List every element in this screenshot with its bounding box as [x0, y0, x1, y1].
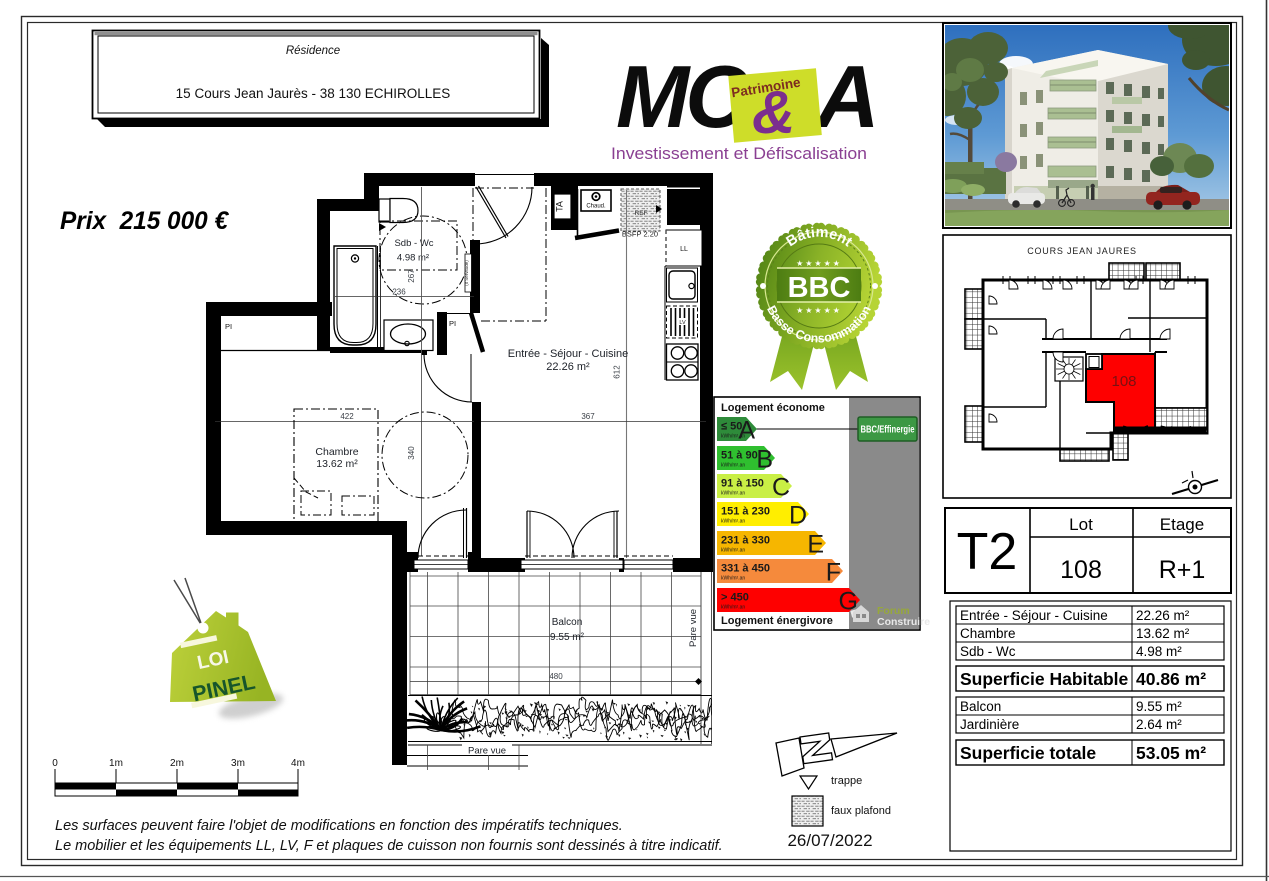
svg-text:4.98 m²: 4.98 m² [397, 253, 429, 264]
svg-text:kWh/m².an: kWh/m².an [721, 576, 745, 582]
svg-text:Superficie Habitable: Superficie Habitable [960, 669, 1129, 689]
svg-text:Balcon: Balcon [960, 699, 1001, 714]
svg-text:236: 236 [392, 288, 406, 297]
svg-text:Etage: Etage [1160, 515, 1204, 534]
svg-text:A: A [814, 47, 880, 146]
svg-text:★★★★★: ★★★★★ [796, 306, 842, 315]
svg-text:53.05 m²: 53.05 m² [1136, 743, 1206, 763]
svg-text:R+1: R+1 [1159, 556, 1206, 584]
svg-text:26/07/2022: 26/07/2022 [787, 831, 872, 850]
svg-text:231 à 330: 231 à 330 [721, 535, 770, 547]
svg-text:108: 108 [1060, 556, 1102, 584]
svg-text:9.55 m²: 9.55 m² [550, 632, 585, 643]
svg-text:> 450: > 450 [721, 592, 749, 604]
svg-text:Chambre: Chambre [960, 626, 1016, 641]
svg-text:Lot: Lot [1069, 515, 1093, 534]
svg-text:22.26 m²: 22.26 m² [1136, 608, 1190, 623]
svg-text:108: 108 [1111, 373, 1136, 390]
svg-text:BBC/Effinergie: BBC/Effinergie [861, 425, 915, 436]
svg-text:15 Cours Jean Jaurès - 38 130: 15 Cours Jean Jaurès - 38 130 ECHIROLLES [176, 86, 451, 101]
svg-text:Sdb - Wc: Sdb - Wc [394, 238, 433, 249]
svg-text:4m: 4m [291, 758, 305, 769]
svg-text:Pare vue: Pare vue [468, 746, 506, 757]
svg-text:kWh/m².an: kWh/m².an [721, 463, 745, 469]
svg-text:331 à 450: 331 à 450 [721, 563, 770, 575]
svg-text:Entrée - Séjour - Cuisine: Entrée - Séjour - Cuisine [508, 348, 628, 360]
svg-text:Résidence: Résidence [286, 45, 340, 57]
svg-text:BBC: BBC [788, 272, 851, 304]
svg-text:13.62 m²: 13.62 m² [1136, 626, 1190, 641]
svg-text:&: & [752, 79, 795, 146]
svg-text:F: F [826, 559, 841, 587]
svg-text:(lt Servitude): (lt Servitude) [464, 260, 469, 286]
svg-text:A: A [738, 417, 755, 445]
svg-text:422: 422 [340, 412, 354, 421]
svg-text:612: 612 [613, 365, 622, 379]
svg-text:3m: 3m [231, 758, 245, 769]
svg-text:COURS JEAN JAURES: COURS JEAN JAURES [1027, 246, 1137, 256]
svg-text:faux plafond: faux plafond [831, 805, 891, 817]
svg-text:kWh/m².an: kWh/m².an [721, 548, 745, 554]
svg-text:4.98 m²: 4.98 m² [1136, 644, 1182, 659]
svg-text:TA: TA [555, 201, 565, 212]
svg-text:340: 340 [407, 446, 416, 460]
svg-text:151 à 230: 151 à 230 [721, 506, 770, 518]
svg-text:Les surfaces peuvent faire l'o: Les surfaces peuvent faire l'objet de mo… [55, 818, 623, 834]
svg-text:Logement énergivore: Logement énergivore [721, 615, 833, 627]
svg-text:LV: LV [679, 320, 686, 326]
svg-text:2m: 2m [170, 758, 184, 769]
svg-text:kWh/m².an: kWh/m².an [721, 605, 745, 611]
svg-text:E: E [807, 531, 824, 559]
svg-text:REF: REF [635, 210, 648, 217]
svg-text:B: B [756, 446, 773, 474]
svg-text:★★★★★: ★★★★★ [796, 259, 842, 268]
svg-text:Investissement et Défiscalisat: Investissement et Défiscalisation [611, 144, 867, 163]
svg-text:367: 367 [581, 412, 595, 421]
svg-text:9.55 m²: 9.55 m² [1136, 699, 1182, 714]
svg-text:Balcon: Balcon [552, 617, 583, 628]
svg-text:0: 0 [52, 758, 58, 769]
svg-text:Le mobilier et les équipements: Le mobilier et les équipements LL, LV, F… [55, 838, 723, 854]
svg-text:Sdb - Wc: Sdb - Wc [960, 644, 1016, 659]
svg-text:480: 480 [549, 672, 563, 681]
svg-text:Pare vue: Pare vue [688, 609, 699, 647]
svg-text:PI: PI [449, 319, 456, 328]
svg-text:C: C [772, 474, 790, 502]
svg-text:kWh/m².an: kWh/m².an [721, 519, 745, 525]
svg-text:Logement économe: Logement économe [721, 402, 825, 414]
svg-text:BSFP 2.20: BSFP 2.20 [622, 230, 658, 239]
svg-text:Superficie totale: Superficie totale [960, 743, 1096, 763]
svg-text:D: D [789, 502, 807, 530]
svg-text:91 à 150: 91 à 150 [721, 478, 764, 490]
svg-text:1m: 1m [109, 758, 123, 769]
svg-text:40.86 m²: 40.86 m² [1136, 669, 1206, 689]
svg-text:Construire: Construire [877, 616, 930, 628]
svg-text:kWh/m².an: kWh/m².an [721, 491, 745, 497]
svg-text:Prix 215 000 €: Prix 215 000 € [60, 207, 229, 235]
svg-text:13.62 m²: 13.62 m² [316, 458, 358, 470]
svg-text:267: 267 [407, 269, 416, 283]
svg-text:Chaud.: Chaud. [586, 204, 606, 210]
svg-text:PI: PI [225, 322, 232, 331]
svg-text:trappe: trappe [831, 775, 862, 787]
svg-text:Entrée - Séjour - Cuisine: Entrée - Séjour - Cuisine [960, 608, 1108, 623]
svg-text:51 à 90: 51 à 90 [721, 450, 758, 462]
svg-text:Jardinière: Jardinière [960, 717, 1019, 732]
svg-text:T2: T2 [957, 523, 1018, 581]
svg-text:22.26 m²: 22.26 m² [546, 361, 590, 373]
svg-text:Chambre: Chambre [315, 446, 358, 458]
svg-text:LL: LL [680, 246, 688, 253]
svg-text:2.64 m²: 2.64 m² [1136, 717, 1182, 732]
